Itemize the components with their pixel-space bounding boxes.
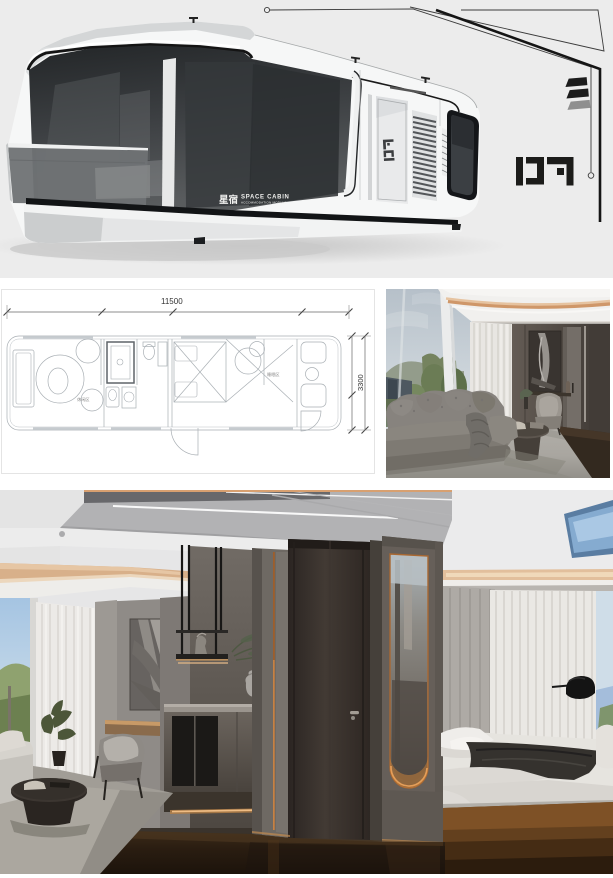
svg-text:星宿: 星宿 (219, 194, 239, 206)
svg-text:休闲区: 休闲区 (77, 396, 90, 403)
svg-text:ACCOMMODATION MODULE: ACCOMMODATION MODULE (241, 201, 287, 205)
svg-text:11500: 11500 (161, 297, 183, 306)
svg-text:睡眠区: 睡眠区 (267, 371, 280, 378)
svg-text:3300: 3300 (356, 374, 365, 391)
